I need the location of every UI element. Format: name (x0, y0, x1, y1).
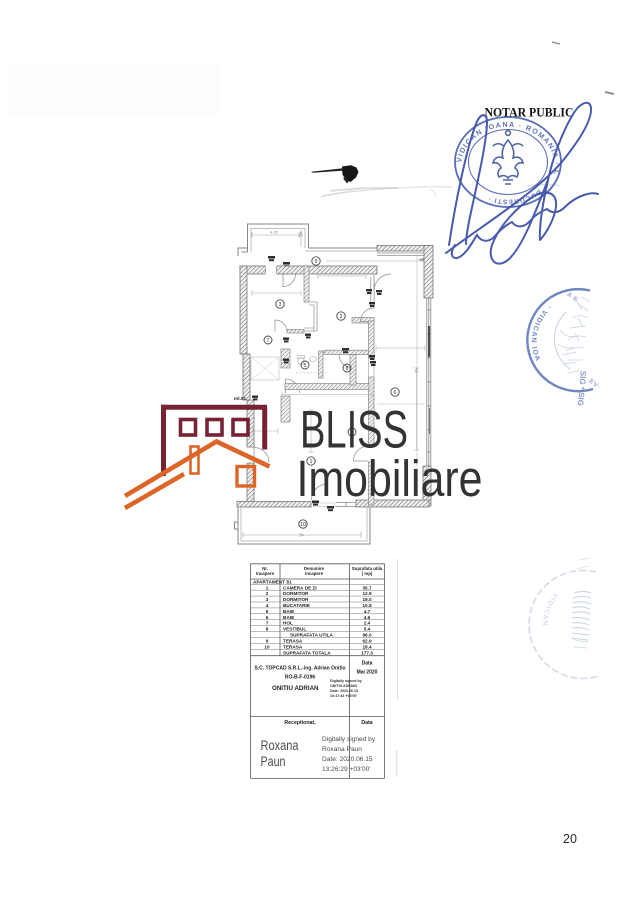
svg-text:BAIE: BAIE (283, 615, 294, 620)
svg-text:2.4: 2.4 (364, 621, 371, 626)
svg-text:8: 8 (266, 627, 269, 632)
svg-text:ONITIU ADRIAN: ONITIU ADRIAN (272, 685, 319, 692)
svg-text:Digitally signed by: Digitally signed by (330, 679, 362, 683)
svg-text:35.7: 35.7 (362, 585, 372, 590)
svg-text:12.9: 12.9 (362, 591, 372, 596)
svg-text:3: 3 (266, 597, 269, 602)
svg-text:Suprafata utila: Suprafata utila (352, 566, 383, 571)
svg-text:19.0: 19.0 (362, 597, 372, 602)
svg-text:DORMITOR: DORMITOR (283, 591, 309, 596)
svg-text:SUPRAFATA TOTALA: SUPRAFATA TOTALA (283, 650, 331, 655)
svg-text:Denumire: Denumire (304, 566, 325, 571)
svg-text:8: 8 (345, 366, 348, 372)
svg-text:Digitally signed by: Digitally signed by (322, 736, 376, 743)
svg-text:177.3: 177.3 (361, 650, 373, 655)
svg-text:APARTAMENT 81: APARTAMENT 81 (253, 579, 292, 584)
svg-text:10.8: 10.8 (362, 603, 372, 608)
svg-text:4.05: 4.05 (270, 230, 279, 235)
svg-text:Paun: Paun (261, 753, 286, 769)
svg-text:10: 10 (300, 522, 306, 528)
svg-text:7: 7 (266, 338, 269, 344)
svg-text:18.4: 18.4 (362, 644, 372, 649)
svg-text:20: 20 (563, 832, 577, 846)
svg-text:mt.91: mt.91 (234, 396, 246, 401)
svg-text:BAIE: BAIE (283, 609, 294, 614)
svg-text:VESTIBUL: VESTIBUL (283, 627, 306, 632)
svg-text:10:47:44 +03'00': 10:47:44 +03'00' (330, 694, 357, 698)
svg-text:Imobiliare: Imobiliare (297, 450, 483, 507)
svg-text:BUCATARIE: BUCATARIE (283, 603, 310, 608)
svg-text:TERASA: TERASA (283, 638, 303, 643)
svg-text:Receptionat,: Receptionat, (284, 720, 316, 726)
svg-text:10: 10 (264, 644, 270, 649)
svg-text:Roxana: Roxana (261, 737, 299, 753)
svg-text:Date: 2020.06.15: Date: 2020.06.15 (322, 756, 373, 763)
svg-text:2: 2 (266, 591, 269, 596)
svg-text:HOL: HOL (283, 621, 293, 626)
svg-text:5: 5 (266, 609, 269, 614)
svg-text:incapere: incapere (305, 571, 324, 576)
svg-text:S.C. TOPCAD S.R.L.-ing. Adrian: S.C. TOPCAD S.R.L.-ing. Adrian Onitiu (254, 666, 345, 672)
svg-text:Roxana Paun: Roxana Paun (322, 746, 362, 753)
svg-text:5: 5 (303, 363, 306, 369)
svg-text:4.6: 4.6 (364, 615, 371, 620)
svg-text:9: 9 (266, 638, 269, 643)
svg-text:62.9: 62.9 (362, 638, 372, 643)
svg-text:6: 6 (393, 390, 396, 396)
svg-text:13:26:29 +03'00': 13:26:29 +03'00' (322, 766, 371, 773)
svg-text:Data: Data (361, 720, 372, 726)
svg-text:Incapere: Incapere (256, 571, 275, 576)
svg-text:1: 1 (266, 585, 269, 590)
svg-text:9: 9 (314, 259, 317, 265)
svg-text:4: 4 (266, 603, 269, 608)
svg-text:Nr.: Nr. (262, 566, 268, 571)
svg-text:CAMERA DE ZI: CAMERA DE ZI (283, 585, 317, 590)
svg-text:Mai 2020: Mai 2020 (357, 670, 378, 676)
svg-text:Data: Data (362, 661, 373, 667)
svg-text:7: 7 (266, 621, 269, 626)
svg-text:RO-B-F-0196: RO-B-F-0196 (285, 675, 316, 681)
svg-text:( mp): ( mp) (362, 571, 373, 576)
svg-text:DORMITOR: DORMITOR (283, 597, 309, 602)
svg-text:Date: 2020.06.15: Date: 2020.06.15 (330, 689, 358, 693)
svg-text:6: 6 (266, 615, 269, 620)
svg-text:ONITIU ADRIAN: ONITIU ADRIAN (330, 684, 357, 688)
svg-text:2: 2 (339, 314, 342, 320)
svg-text:96.0: 96.0 (362, 633, 372, 638)
svg-text:3: 3 (278, 302, 281, 308)
svg-text:SUPRAFATA UTILA: SUPRAFATA UTILA (290, 633, 333, 638)
svg-text:4.7: 4.7 (364, 609, 371, 614)
svg-text:5.4: 5.4 (364, 627, 371, 632)
svg-text:TERASA: TERASA (283, 644, 303, 649)
